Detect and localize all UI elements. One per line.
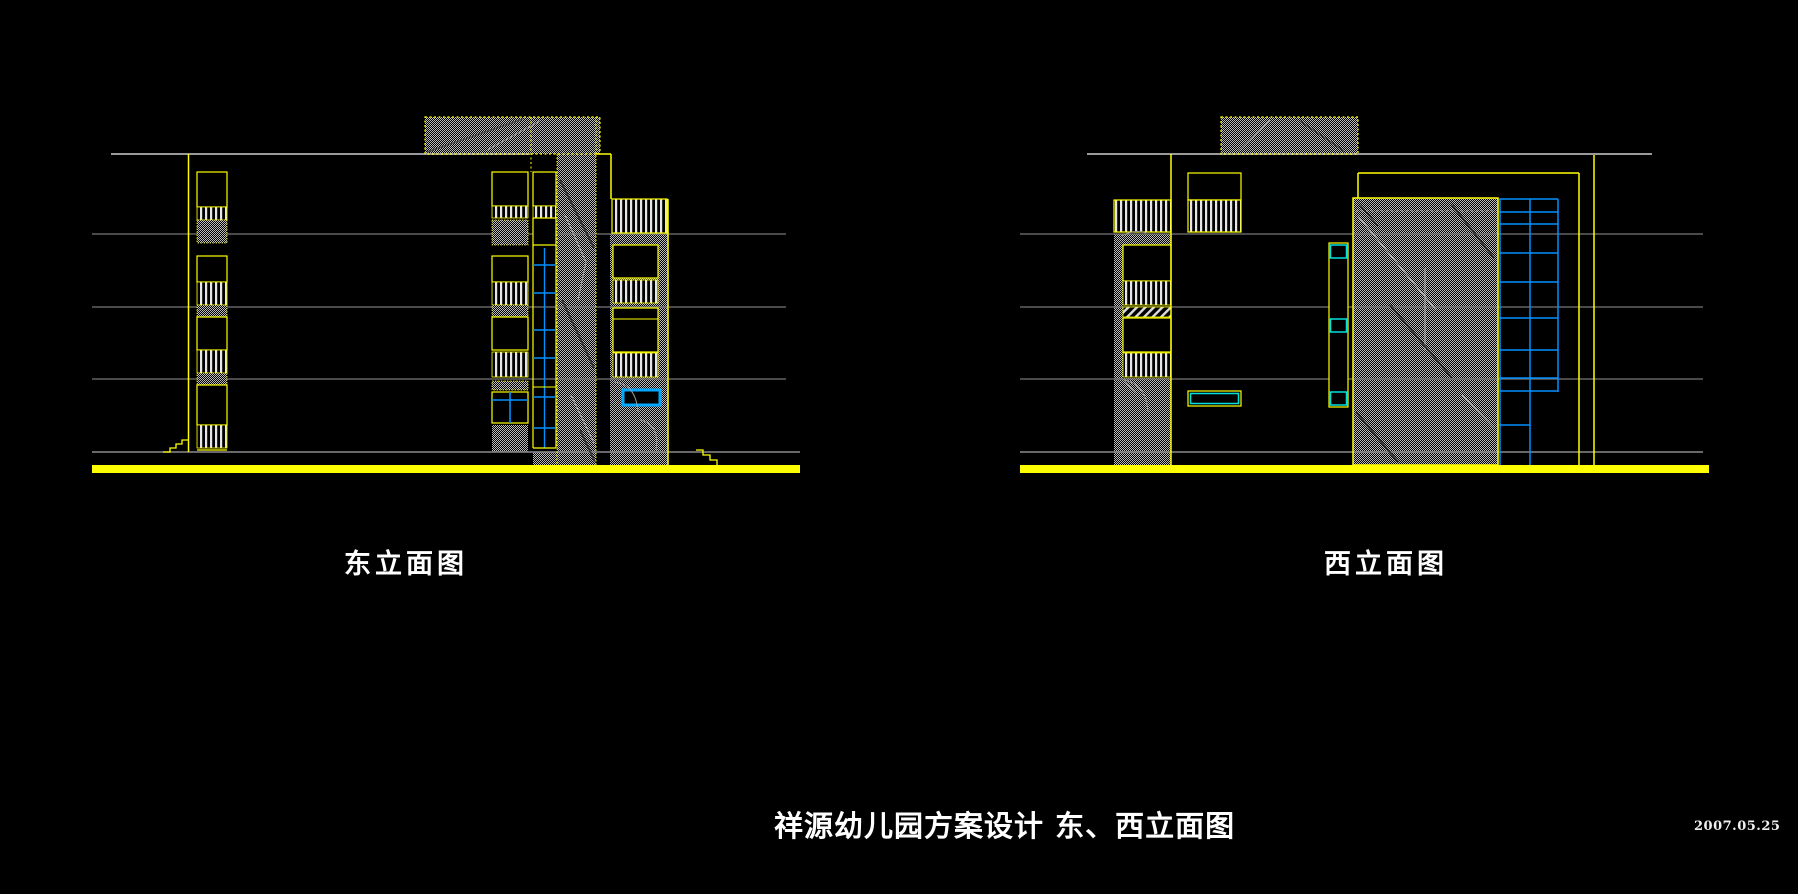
east-entrance-blue-window bbox=[623, 390, 660, 405]
sheet-title: 祥源幼儿园方案设计 东、西立面图 bbox=[774, 803, 1235, 845]
west-ground-line bbox=[1020, 465, 1709, 473]
cad-drawing-canvas bbox=[0, 0, 1798, 894]
west-elevation-label: 西立面图 bbox=[1324, 542, 1448, 581]
east-parapet-step bbox=[596, 154, 611, 199]
west-curtainwall-grid bbox=[1499, 199, 1558, 465]
east-mid-window-column bbox=[492, 172, 528, 423]
drawing-date: 2007.05.25 bbox=[1694, 819, 1780, 834]
east-elevation-label: 东立面图 bbox=[344, 542, 468, 581]
west-balcony-column bbox=[1188, 173, 1241, 406]
cad-viewport: 东立面图 西立面图 祥源幼儿园方案设计 东、西立面图 2007.05.25 bbox=[0, 0, 1798, 894]
east-left-steps bbox=[163, 440, 189, 452]
east-elevation-drawing bbox=[92, 117, 800, 473]
east-ground-line bbox=[92, 465, 800, 473]
east-stair-glazing-strip bbox=[533, 172, 556, 448]
east-left-window-column bbox=[197, 172, 227, 450]
west-elevation-drawing bbox=[1020, 117, 1709, 473]
west-window-strip bbox=[1329, 243, 1348, 407]
